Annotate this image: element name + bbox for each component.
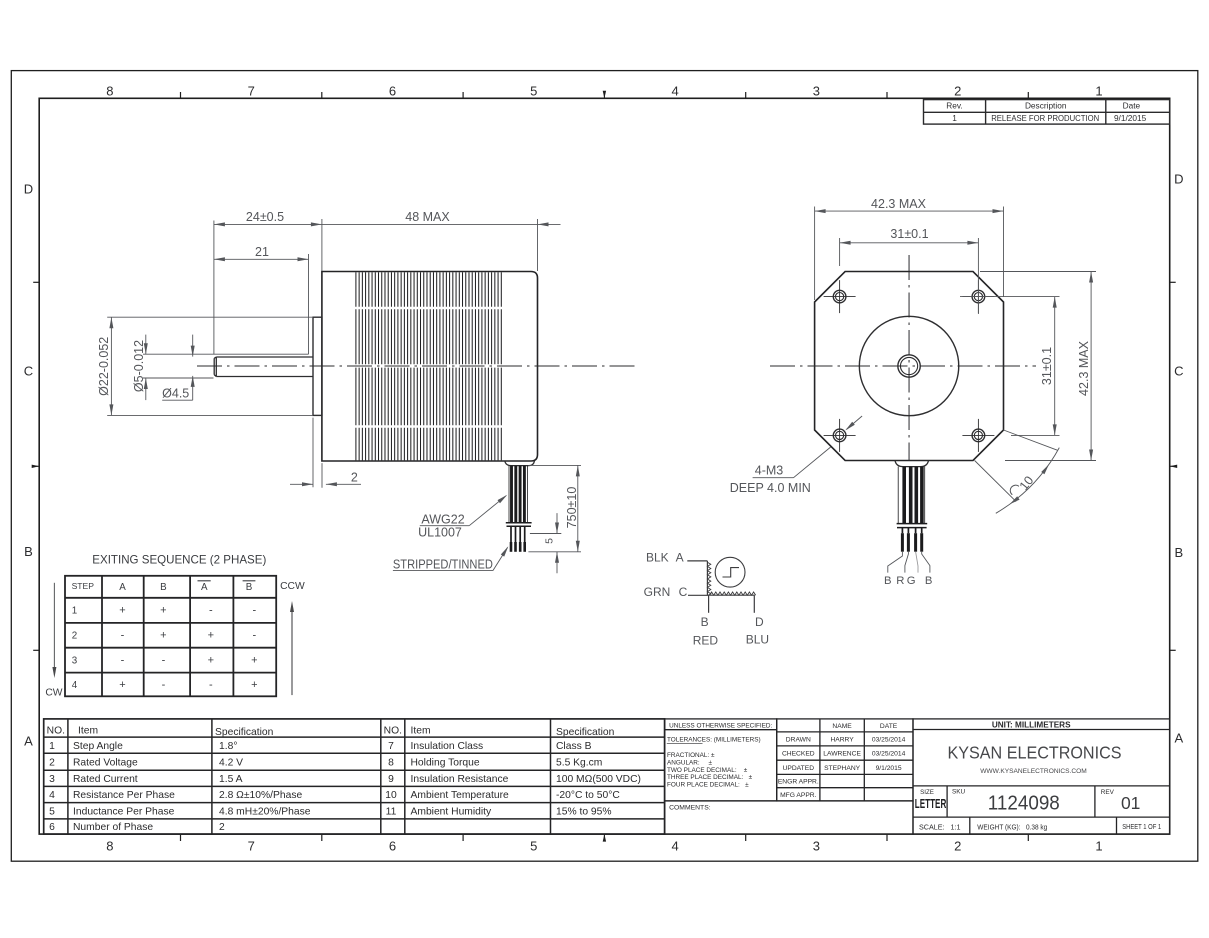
svg-text:5: 5 [530,83,537,98]
svg-text:ANGULAR: ±: ANGULAR: ± [667,760,713,767]
svg-text:Specification: Specification [556,727,615,738]
svg-text:+: + [251,655,257,667]
svg-text:-: - [252,630,256,642]
svg-text:REV: REV [1101,789,1115,796]
svg-text:B: B [160,582,167,593]
svg-text:D: D [1174,172,1183,187]
svg-text:Insulation Resistance: Insulation Resistance [411,774,509,785]
svg-text:21: 21 [255,245,269,259]
svg-text:STEPHANY: STEPHANY [824,765,861,772]
svg-text:3: 3 [72,656,78,667]
svg-text:3: 3 [813,83,820,98]
svg-text:6: 6 [389,839,396,854]
svg-text:Holding Torque: Holding Torque [411,757,480,768]
svg-text:FOUR PLACE DECIMAL: ±: FOUR PLACE DECIMAL: ± [667,781,749,788]
svg-text:4: 4 [671,83,678,98]
svg-text:5: 5 [530,839,537,854]
svg-text:RED: RED [693,633,719,647]
svg-text:42.3 MAX: 42.3 MAX [871,197,927,211]
svg-text:15% to 95%: 15% to 95% [556,806,612,817]
svg-text:2: 2 [954,839,961,854]
svg-text:750±10: 750±10 [565,487,579,529]
svg-text:31±0.1: 31±0.1 [1040,347,1054,385]
svg-text:MFG APPR.: MFG APPR. [780,792,817,799]
svg-text:6: 6 [49,822,55,833]
svg-text:KYSAN ELECTRONICS: KYSAN ELECTRONICS [948,742,1122,762]
svg-text:03/25/2014: 03/25/2014 [872,737,906,744]
svg-text:8: 8 [106,83,113,98]
svg-text:CCW: CCW [280,581,305,592]
svg-text:UL1007: UL1007 [418,526,462,540]
svg-text:31±0.1: 31±0.1 [890,227,928,241]
svg-text:Class B: Class B [556,741,592,752]
svg-text:2: 2 [219,822,225,833]
svg-text:4.8 mH±20%/Phase: 4.8 mH±20%/Phase [219,806,311,817]
svg-text:NO.: NO. [384,726,402,737]
svg-text:+: + [160,605,166,617]
svg-text:LETTER: LETTER [915,796,947,811]
svg-text:3: 3 [49,774,55,785]
svg-text:B: B [884,575,892,587]
svg-text:-: - [252,605,256,617]
svg-text:42.3 MAX: 42.3 MAX [1077,340,1091,396]
svg-text:B: B [925,575,933,587]
svg-text:03/25/2014: 03/25/2014 [872,751,906,758]
svg-text:Number of Phase: Number of Phase [73,822,153,833]
svg-text:Ambient Temperature: Ambient Temperature [411,790,510,801]
svg-text:10: 10 [385,790,397,801]
svg-text:Ø5-0.012: Ø5-0.012 [132,340,146,392]
svg-text:A: A [24,734,33,749]
svg-text:2: 2 [49,757,55,768]
svg-text:-: - [209,679,213,691]
svg-text:C: C [679,585,688,599]
svg-text:100 MΩ(500 VDC): 100 MΩ(500 VDC) [556,774,641,785]
svg-text:Description: Description [1025,101,1067,111]
svg-text:CW: CW [45,687,62,698]
svg-text:FRACTIONAL: ±: FRACTIONAL: ± [667,752,715,759]
svg-text:COMMENTS:: COMMENTS: [669,804,711,811]
svg-text:5: 5 [544,538,556,544]
svg-text:8: 8 [106,839,113,854]
svg-text:Ø22-0.052: Ø22-0.052 [97,337,111,396]
svg-text:-: - [209,605,213,617]
svg-text:B: B [701,615,709,629]
svg-text:AWG22: AWG22 [421,512,464,526]
svg-text:6: 6 [389,83,396,98]
svg-text:7: 7 [248,83,255,98]
svg-text:-: - [162,679,166,691]
svg-text:4-M3: 4-M3 [755,464,784,478]
svg-text:Rated Voltage: Rated Voltage [73,757,138,768]
svg-text:DRAWN: DRAWN [786,737,811,744]
svg-text:DEEP 4.0 MIN: DEEP 4.0 MIN [730,481,811,495]
svg-text:+: + [119,679,125,691]
svg-text:LAWRENCE: LAWRENCE [823,751,861,758]
svg-text:+: + [160,630,166,642]
svg-text:Specification: Specification [215,727,274,738]
svg-text:1: 1 [1095,83,1102,98]
svg-text:BLU: BLU [746,633,769,647]
svg-text:THREE PLACE DECIMAL: ±: THREE PLACE DECIMAL: ± [667,774,753,781]
svg-text:Insulation Class: Insulation Class [411,741,484,752]
svg-text:4.2 V: 4.2 V [219,757,243,768]
svg-text:24±0.5: 24±0.5 [246,210,284,224]
svg-text:2: 2 [72,631,77,642]
svg-text:1: 1 [1095,839,1102,854]
svg-text:A: A [676,550,684,564]
svg-text:1.5 A: 1.5 A [219,774,243,785]
svg-text:A: A [201,582,208,593]
svg-text:D: D [24,182,33,197]
svg-text:Item: Item [78,726,98,737]
svg-text:9/1/2015: 9/1/2015 [1114,113,1147,123]
svg-text:WWW.KYSANELECTRONICS.COM: WWW.KYSANELECTRONICS.COM [980,768,1087,775]
svg-text:4: 4 [671,839,678,854]
svg-text:Ambient Humidity: Ambient Humidity [411,806,493,817]
svg-text:5.5 Kg.cm: 5.5 Kg.cm [556,757,602,768]
svg-text:1124098: 1124098 [988,793,1060,815]
svg-text:HARRY: HARRY [830,737,854,744]
svg-text:BLK: BLK [646,550,669,564]
svg-text:-: - [121,655,125,667]
svg-text:1: 1 [952,113,957,123]
svg-text:ENGR APPR.: ENGR APPR. [778,779,819,786]
svg-text:7: 7 [248,839,255,854]
svg-text:D: D [755,615,764,629]
svg-text:GRN: GRN [644,585,671,599]
svg-text:5: 5 [49,806,55,817]
svg-text:Date: Date [1123,101,1141,111]
svg-text:NO.: NO. [47,726,65,737]
svg-text:SHEET 1 OF 1: SHEET 1 OF 1 [1122,822,1161,831]
svg-text:4: 4 [72,680,78,691]
svg-text:R: R [896,575,904,587]
svg-text:Ø4.5: Ø4.5 [162,386,189,400]
svg-text:UPDATED: UPDATED [783,765,815,772]
svg-text:B: B [24,544,33,559]
svg-text:11: 11 [386,806,397,817]
svg-text:+: + [208,630,214,642]
svg-text:B: B [1174,545,1183,560]
svg-text:TOLERANCES: (MILLIMETERS): TOLERANCES: (MILLIMETERS) [667,737,761,744]
svg-text:SKU: SKU [952,789,966,796]
svg-text:4: 4 [49,790,55,801]
svg-text:48 MAX: 48 MAX [405,210,450,224]
svg-text:CHECKED: CHECKED [782,751,815,758]
svg-text:-: - [162,655,166,667]
svg-text:+: + [208,655,214,667]
svg-text:2: 2 [351,471,358,485]
svg-text:NAME: NAME [832,723,852,730]
svg-text:1: 1 [72,606,77,617]
svg-text:DATE: DATE [880,723,898,730]
svg-text:Inductance Per Phase: Inductance Per Phase [73,806,175,817]
svg-text:G: G [907,575,916,587]
svg-text:C: C [1174,364,1183,379]
svg-text:Rated Current: Rated Current [73,774,138,785]
svg-text:+: + [251,679,257,691]
svg-text:3: 3 [813,839,820,854]
svg-text:Step Angle: Step Angle [73,741,123,752]
svg-text:B: B [246,582,253,593]
svg-text:-: - [121,630,125,642]
svg-text:2: 2 [954,83,961,98]
svg-text:UNIT: MILLIMETERS: UNIT: MILLIMETERS [992,721,1071,730]
svg-text:Rev.: Rev. [946,101,962,111]
svg-text:9/1/2015: 9/1/2015 [876,765,902,772]
svg-text:Item: Item [411,726,431,737]
svg-text:01: 01 [1121,793,1140,813]
svg-text:1: 1 [49,741,55,752]
svg-text:2.8 Ω±10%/Phase: 2.8 Ω±10%/Phase [219,790,302,801]
svg-text:STEP: STEP [72,581,95,591]
svg-text:UNLESS OTHERWISE SPECIFIED:: UNLESS OTHERWISE SPECIFIED: [669,722,772,729]
svg-text:TWO PLACE DECIMAL: ±: TWO PLACE DECIMAL: ± [667,767,748,774]
svg-text:A: A [119,582,126,593]
svg-text:1.8°: 1.8° [219,741,237,752]
svg-text:7: 7 [388,741,394,752]
svg-text:EXITING SEQUENCE (2 PHASE): EXITING SEQUENCE (2 PHASE) [92,552,266,566]
svg-text:WEIGHT (KG): 0.38 kg: WEIGHT (KG): 0.38 kg [977,823,1047,832]
svg-text:-20°C to 50°C: -20°C to 50°C [556,790,620,801]
svg-text:C: C [24,364,33,379]
svg-text:+: + [119,605,125,617]
svg-text:STRIPPED/TINNED: STRIPPED/TINNED [393,557,493,571]
svg-text:RELEASE FOR PRODUCTION: RELEASE FOR PRODUCTION [991,113,1099,123]
svg-text:8: 8 [388,757,394,768]
svg-text:SCALE: 1:1: SCALE: 1:1 [919,823,961,832]
svg-text:Resistance Per Phase: Resistance Per Phase [73,790,175,801]
svg-text:9: 9 [388,774,394,785]
svg-text:A: A [1174,731,1183,746]
